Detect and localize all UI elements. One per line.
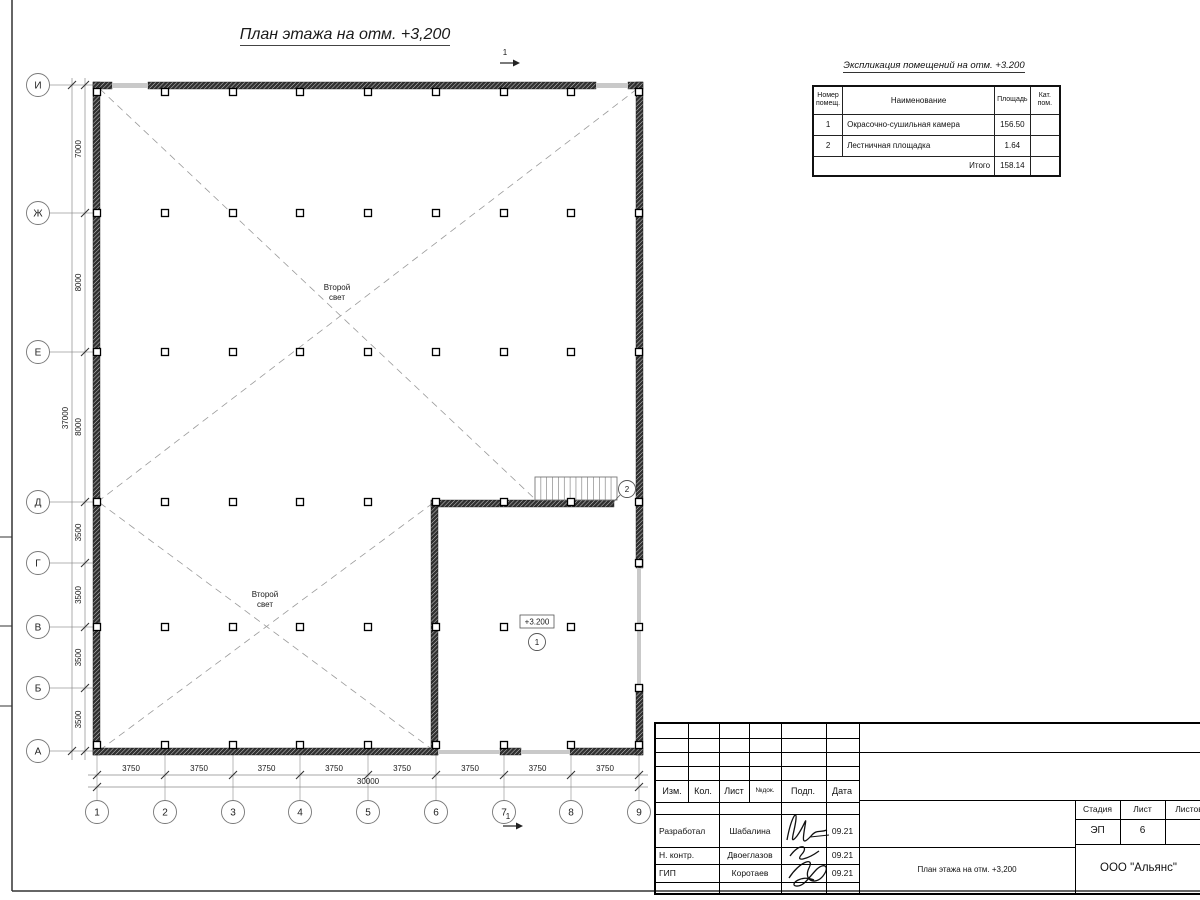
sheet-value: 6 (1120, 820, 1165, 842)
col-header-name: Наименование (843, 86, 995, 114)
titleblock-line (656, 766, 859, 767)
titleblock-column-header: Подп. (782, 782, 825, 800)
section-mark-label: 1 (503, 48, 508, 57)
column-marker (501, 624, 508, 631)
titleblock-line (656, 738, 859, 739)
dim-label-horizontal: 3750 (461, 764, 479, 773)
void-diagonal (100, 89, 637, 500)
second-light-label: Второй (252, 590, 278, 599)
titleblock-line (1075, 800, 1076, 893)
titleblock-role: Разработал (659, 824, 718, 838)
explication-header-row: Номер помещ. Наименование Площадь Кат. п… (813, 86, 1060, 114)
column-marker (636, 89, 643, 96)
column-marker (433, 89, 440, 96)
column-marker (297, 349, 304, 356)
col-axis-label: 5 (365, 808, 371, 819)
column-marker (94, 210, 101, 217)
explication-cell-number: 1 (813, 114, 843, 135)
column-marker (501, 499, 508, 506)
explication-cell-category (1030, 135, 1060, 156)
drawing-title-text: План этажа на отм. +3,200 (240, 26, 450, 46)
dim-label-vertical: 7000 (74, 140, 83, 158)
column-marker (230, 89, 237, 96)
column-marker (162, 624, 169, 631)
row-axis-label: Б (35, 684, 42, 695)
explication-cell-category (1030, 114, 1060, 135)
column-marker (230, 624, 237, 631)
dim-label-horizontal: 3750 (190, 764, 208, 773)
drawing-title: План этажа на отм. +3,200 (205, 26, 485, 44)
col-axis-label: 4 (297, 808, 303, 819)
titleblock-name: Шабалина (719, 824, 781, 838)
titleblock-line (859, 800, 1200, 801)
dim-label-vertical: 8000 (74, 418, 83, 436)
column-marker (365, 742, 372, 749)
dim-label-vertical: 3500 (74, 648, 83, 666)
column-marker (365, 210, 372, 217)
col-header-area: Площадь (995, 86, 1030, 114)
column-marker (365, 624, 372, 631)
titleblock-role: Н. контр. (659, 848, 718, 862)
titleblock-line (859, 752, 1200, 753)
column-marker (162, 349, 169, 356)
col-axis-label: 9 (636, 808, 642, 819)
row-axis-label: Ж (33, 209, 43, 220)
column-marker (636, 685, 643, 692)
explication-cell-area: 1.64 (995, 135, 1030, 156)
elevation-mark-label: +3.200 (525, 618, 550, 627)
titleblock-date: 09.21 (826, 824, 859, 838)
column-marker (433, 624, 440, 631)
total-category (1030, 156, 1060, 176)
row-axis-label: А (35, 747, 42, 758)
column-marker (230, 742, 237, 749)
column-marker (636, 210, 643, 217)
wall-opening (438, 750, 500, 754)
wall (431, 500, 614, 507)
row-axis-label: В (35, 623, 42, 634)
dim-label-horizontal: 3750 (529, 764, 547, 773)
title-block: План этажа на отм. +3,200 ООО "Альянс" С… (654, 722, 1200, 895)
sheets-label: Листов (1165, 801, 1200, 818)
titleblock-column-header: Лист (720, 782, 748, 800)
second-light-label: свет (329, 293, 345, 302)
column-marker (297, 210, 304, 217)
titleblock-doc-title: План этажа на отм. +3,200 (859, 847, 1075, 893)
dim-label-horizontal: 3750 (393, 764, 411, 773)
titleblock-line (1075, 844, 1200, 845)
titleblock-line (656, 752, 859, 753)
dim-label-vertical: 3500 (74, 710, 83, 728)
titleblock-line (1120, 800, 1121, 844)
dim-label-horizontal-total: 30000 (357, 777, 380, 786)
titleblock-line (656, 802, 859, 803)
stage-value: ЭП (1075, 820, 1120, 842)
titleblock-line (1165, 800, 1166, 844)
dim-label-horizontal: 3750 (258, 764, 276, 773)
column-marker (162, 742, 169, 749)
row-axis-label: Д (35, 498, 42, 509)
column-marker (365, 349, 372, 356)
titleblock-column-header: Дата (826, 782, 858, 800)
titleblock-company: ООО "Альянс" (1075, 844, 1200, 893)
section-mark-arrow (516, 823, 523, 830)
explication-title-text: Экспликация помещений на отм. +3.200 (843, 60, 1024, 73)
wall (636, 82, 643, 568)
column-marker (230, 349, 237, 356)
drawing-sheet: 7000800080003500350035003500370003750375… (0, 0, 1200, 900)
dim-label-horizontal: 3750 (122, 764, 140, 773)
col-header-number: Номер помещ. (813, 86, 843, 114)
explication-row: 1Окрасочно-сушильная камера156.50 (813, 114, 1060, 135)
wall (570, 748, 643, 755)
explication-title: Экспликация помещений на отм. +3.200 (812, 60, 1056, 71)
column-marker (568, 349, 575, 356)
column-marker (94, 349, 101, 356)
column-marker (94, 624, 101, 631)
stage-label: Стадия (1075, 801, 1120, 818)
column-marker (297, 89, 304, 96)
column-marker (636, 624, 643, 631)
wall-opening (521, 750, 570, 754)
titleblock-column-header: Кол. (689, 782, 718, 800)
explication-cell-name: Окрасочно-сушильная камера (843, 114, 995, 135)
row-axis-label: И (34, 81, 41, 92)
titleblock-name: Двоеглазов (719, 848, 781, 862)
column-marker (568, 210, 575, 217)
titleblock-line (656, 882, 859, 883)
column-marker (297, 499, 304, 506)
column-marker (636, 560, 643, 567)
wall-opening (596, 83, 628, 88)
column-marker (636, 499, 643, 506)
dim-label-vertical-total: 37000 (61, 406, 70, 429)
column-marker (501, 349, 508, 356)
total-label: Итого (813, 156, 995, 176)
column-marker (230, 210, 237, 217)
column-marker (94, 499, 101, 506)
titleblock-column-header: №док. (750, 782, 781, 800)
column-marker (94, 89, 101, 96)
wall (93, 748, 438, 755)
column-marker (636, 349, 643, 356)
room1-number: 1 (535, 638, 540, 647)
column-marker (636, 742, 643, 749)
row-axis-label: Е (35, 348, 42, 359)
titleblock-line (1075, 819, 1200, 820)
void-diagonal (100, 89, 536, 500)
titleblock-line (656, 814, 859, 815)
sheet-label: Лист (1120, 801, 1165, 818)
second-light-label: свет (257, 600, 273, 609)
column-marker (568, 624, 575, 631)
column-marker (501, 210, 508, 217)
wall-opening (112, 83, 148, 88)
column-marker (230, 499, 237, 506)
column-marker (501, 89, 508, 96)
explication-row: 2Лестничная площадка1.64 (813, 135, 1060, 156)
titleblock-line (656, 864, 859, 865)
column-marker (433, 210, 440, 217)
column-marker (433, 349, 440, 356)
column-marker (365, 89, 372, 96)
dim-label-vertical: 3500 (74, 586, 83, 604)
col-axis-label: 2 (162, 808, 168, 819)
col-axis-label: 3 (230, 808, 236, 819)
column-marker (568, 89, 575, 96)
explication-cell-name: Лестничная площадка (843, 135, 995, 156)
explication-total-row: Итого 158.14 (813, 156, 1060, 176)
column-marker (433, 499, 440, 506)
column-marker (568, 742, 575, 749)
column-marker (501, 742, 508, 749)
explication-cell-number: 2 (813, 135, 843, 156)
room2-number: 2 (625, 485, 630, 494)
section-mark-arrow (513, 60, 520, 67)
column-marker (94, 742, 101, 749)
explication-cell-area: 156.50 (995, 114, 1030, 135)
row-axis-label: Г (35, 559, 41, 570)
column-marker (162, 89, 169, 96)
column-marker (297, 624, 304, 631)
titleblock-role: ГИП (659, 866, 718, 880)
titleblock-column-header: Изм. (657, 782, 687, 800)
dim-label-vertical: 3500 (74, 523, 83, 541)
second-light-label: Второй (324, 283, 350, 292)
titleblock-line (859, 847, 1075, 848)
titleblock-date: 09.21 (826, 848, 859, 862)
col-axis-label: 8 (568, 808, 574, 819)
titleblock-line (656, 780, 859, 781)
titleblock-date: 09.21 (826, 866, 859, 880)
column-marker (568, 499, 575, 506)
wall (93, 82, 100, 755)
titleblock-line (781, 724, 782, 893)
col-header-category: Кат. пом. (1030, 86, 1060, 114)
column-marker (162, 210, 169, 217)
dim-label-vertical: 8000 (74, 273, 83, 291)
column-marker (433, 742, 440, 749)
column-marker (162, 499, 169, 506)
col-axis-label: 1 (94, 808, 100, 819)
column-marker (365, 499, 372, 506)
explication-table: Номер помещ. Наименование Площадь Кат. п… (812, 85, 1061, 177)
col-axis-label: 6 (433, 808, 439, 819)
column-marker (297, 742, 304, 749)
dim-label-horizontal: 3750 (325, 764, 343, 773)
dim-label-horizontal: 3750 (596, 764, 614, 773)
titleblock-name: Коротаев (719, 866, 781, 880)
total-area: 158.14 (995, 156, 1030, 176)
section-mark-label: 1 (506, 812, 511, 821)
titleblock-line (859, 724, 860, 893)
